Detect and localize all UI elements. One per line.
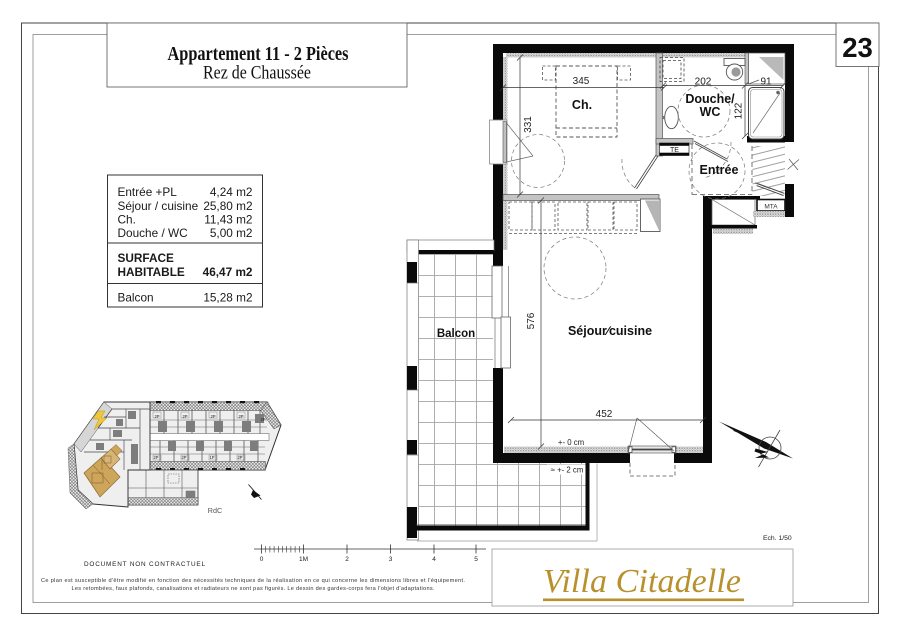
svg-text:DOCUMENT NON CONTRACTUEL: DOCUMENT NON CONTRACTUEL: [84, 561, 205, 568]
svg-text:≈ +- 2 cm: ≈ +- 2 cm: [551, 466, 584, 475]
svg-text:Ch.: Ch.: [118, 212, 136, 226]
svg-text:2P: 2P: [182, 414, 187, 419]
svg-text:MTA: MTA: [764, 204, 778, 211]
svg-text:202: 202: [695, 77, 712, 88]
svg-text:25,80 m2: 25,80 m2: [203, 199, 252, 213]
svg-text:WC: WC: [700, 105, 721, 119]
svg-text:2P: 2P: [237, 455, 242, 460]
svg-text:5: 5: [474, 556, 478, 563]
svg-text:2: 2: [345, 556, 349, 563]
svg-text:Villa Citadelle: Villa Citadelle: [543, 563, 741, 600]
svg-text:2P: 2P: [210, 414, 215, 419]
svg-text:5,00 m2: 5,00 m2: [210, 226, 253, 240]
svg-text:Ch.: Ch.: [572, 98, 592, 112]
svg-text:Balcon: Balcon: [437, 328, 475, 340]
svg-text:91: 91: [760, 77, 772, 88]
svg-text:23: 23: [842, 32, 873, 63]
svg-text:+- 0 cm: +- 0 cm: [558, 438, 584, 447]
svg-text:SURFACE: SURFACE: [118, 251, 175, 265]
svg-text:452: 452: [596, 409, 613, 420]
svg-text:Douche/: Douche/: [685, 92, 735, 106]
svg-text:2P: 2P: [238, 414, 243, 419]
svg-text:2P: 2P: [181, 455, 186, 460]
svg-text:Séjour∕cuisine: Séjour∕cuisine: [568, 324, 652, 338]
svg-text:TE: TE: [670, 147, 679, 154]
svg-text:RdC: RdC: [208, 506, 222, 515]
svg-text:11,43 m2: 11,43 m2: [204, 212, 252, 226]
svg-text:Ce plan est susceptible d'être: Ce plan est susceptible d'être modifié e…: [41, 578, 465, 584]
svg-text:Entrée: Entrée: [700, 163, 739, 177]
svg-text:3: 3: [389, 556, 393, 563]
svg-text:Balcon: Balcon: [118, 291, 154, 305]
svg-text:2P: 2P: [260, 417, 265, 422]
svg-text:Ech. 1/50: Ech. 1/50: [763, 535, 792, 542]
svg-text:345: 345: [573, 76, 590, 87]
svg-text:0: 0: [260, 556, 264, 563]
svg-text:Douche / WC: Douche / WC: [118, 226, 189, 240]
svg-text:HABITABLE: HABITABLE: [118, 265, 185, 279]
svg-text:4,24 m2: 4,24 m2: [210, 185, 253, 199]
svg-text:1M: 1M: [299, 556, 308, 563]
svg-text:576: 576: [526, 312, 537, 329]
svg-text:Entrée +PL: Entrée +PL: [118, 185, 178, 199]
svg-text:Appartement 11 - 2 Pièces: Appartement 11 - 2 Pièces: [168, 43, 349, 65]
svg-text:15,28 m2: 15,28 m2: [203, 291, 252, 305]
svg-text:46,47 m2: 46,47 m2: [203, 265, 253, 279]
svg-text:1P: 1P: [209, 455, 214, 460]
svg-text:Rez de Chaussée: Rez de Chaussée: [203, 64, 311, 84]
svg-text:Séjour / cuisine: Séjour / cuisine: [118, 199, 199, 213]
svg-text:331: 331: [523, 116, 534, 133]
svg-text:122: 122: [734, 102, 745, 119]
svg-text:4: 4: [432, 556, 436, 563]
svg-text:2P: 2P: [154, 414, 159, 419]
svg-text:2P: 2P: [153, 455, 158, 460]
svg-text:Les retombées, faux plafonds,: Les retombées, faux plafonds, canalisati…: [72, 586, 435, 592]
